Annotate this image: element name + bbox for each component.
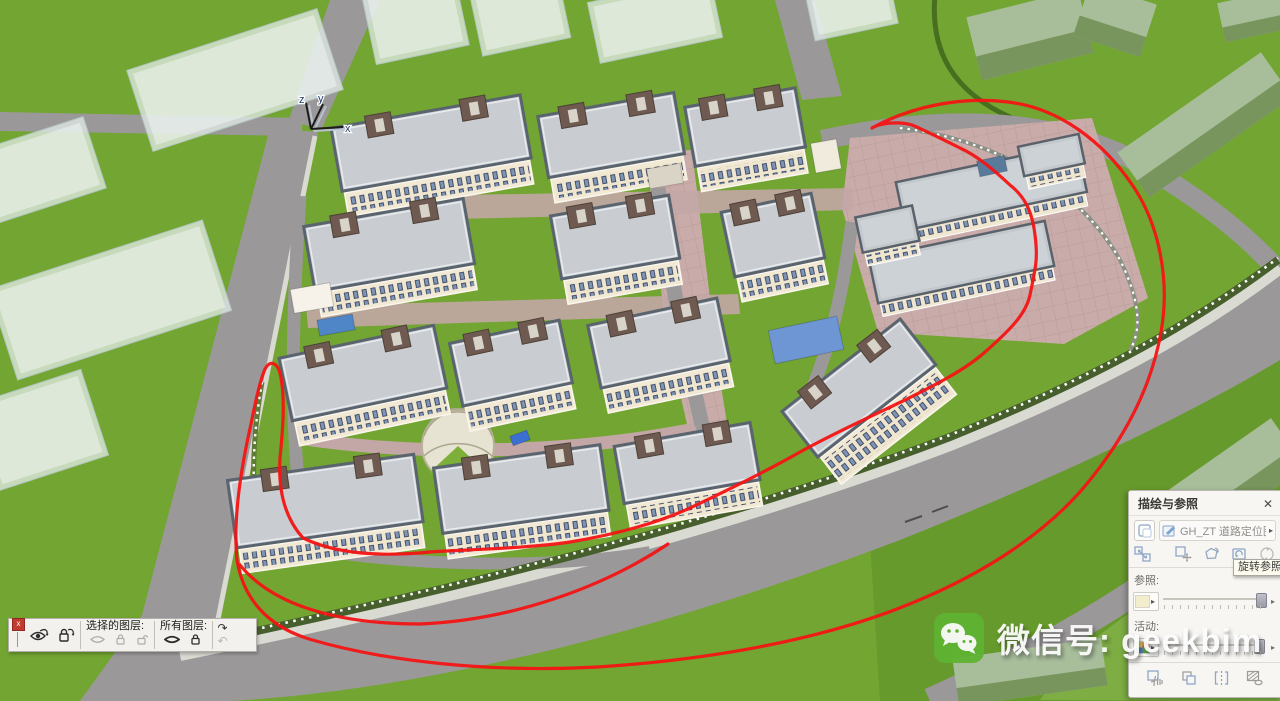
show-selected-layers-icon[interactable] xyxy=(90,633,105,645)
move-reference-button[interactable] xyxy=(1175,546,1192,562)
close-icon[interactable]: ✕ xyxy=(1263,498,1273,510)
application-window: z y x x xyxy=(0,0,1280,701)
fill-visibility-button[interactable] xyxy=(1246,670,1263,687)
axis-z-label: z xyxy=(299,94,305,106)
show-all-layers-icon[interactable] xyxy=(164,633,180,645)
lock-selected-layers-icon[interactable] xyxy=(115,633,126,645)
close-toolbar-button[interactable]: x xyxy=(12,618,25,631)
reference-color-swatch[interactable]: ▸ xyxy=(1133,592,1159,611)
toggle-visibility-button[interactable] xyxy=(27,619,53,651)
drag-handle[interactable] xyxy=(17,632,18,647)
3d-viewport[interactable]: z y x xyxy=(0,0,1280,701)
box-building xyxy=(811,139,842,173)
res-building xyxy=(549,189,684,304)
layer-toolbar: x 选择的图层: xyxy=(8,618,257,652)
distort-reference-button[interactable] xyxy=(1203,546,1220,562)
reference-opacity-slider[interactable] xyxy=(1163,591,1265,611)
eye-arrow-icon xyxy=(30,626,50,644)
selected-layers-label: 选择的图层: xyxy=(86,620,149,633)
active-opacity-label: 活动: xyxy=(1129,615,1280,635)
undo-icon[interactable]: ↶ xyxy=(218,635,228,648)
axis-y-label: y xyxy=(318,93,324,105)
active-color-swatch[interactable]: ▸ xyxy=(1133,638,1159,657)
panel-title: 描绘与参照 xyxy=(1138,495,1198,512)
fit-reference-button[interactable] xyxy=(1134,546,1151,562)
reference-row-arrow[interactable]: ▸ xyxy=(1269,597,1277,606)
grab-trace-button[interactable] xyxy=(1147,670,1165,687)
trace-reference-panel: 描绘与参照 ✕ GH_ZT 道路定位图 ... ▸ xyxy=(1128,490,1280,698)
rotate-reference-tooltip: 旋转参照 xyxy=(1233,559,1280,576)
lock-all-layers-icon[interactable] xyxy=(190,633,201,645)
switch-reference-button[interactable] xyxy=(1181,670,1197,687)
all-layers-label: 所有图层: xyxy=(160,620,207,633)
compare-split-button[interactable] xyxy=(1213,670,1230,687)
reference-name: GH_ZT 道路定位图 ... xyxy=(1180,523,1266,539)
reference-document-icon xyxy=(1162,524,1177,538)
res-building xyxy=(684,82,810,192)
unlock-selected-layers-icon[interactable] xyxy=(136,633,149,645)
lock-arrow-icon xyxy=(57,626,75,644)
active-opacity-slider[interactable] xyxy=(1163,637,1265,657)
axis-x-label: x xyxy=(345,123,351,135)
active-row-arrow[interactable]: ▸ xyxy=(1269,643,1277,652)
trace-frame-icon xyxy=(1138,524,1152,538)
panel-titlebar[interactable]: 描绘与参照 ✕ xyxy=(1129,491,1280,516)
toggle-lock-button[interactable] xyxy=(53,619,79,651)
reference-picker[interactable]: GH_ZT 道路定位图 ... ▸ xyxy=(1159,520,1276,541)
picker-arrow-icon: ▸ xyxy=(1269,526,1273,535)
trace-toggle-checkbox[interactable] xyxy=(1134,520,1155,541)
